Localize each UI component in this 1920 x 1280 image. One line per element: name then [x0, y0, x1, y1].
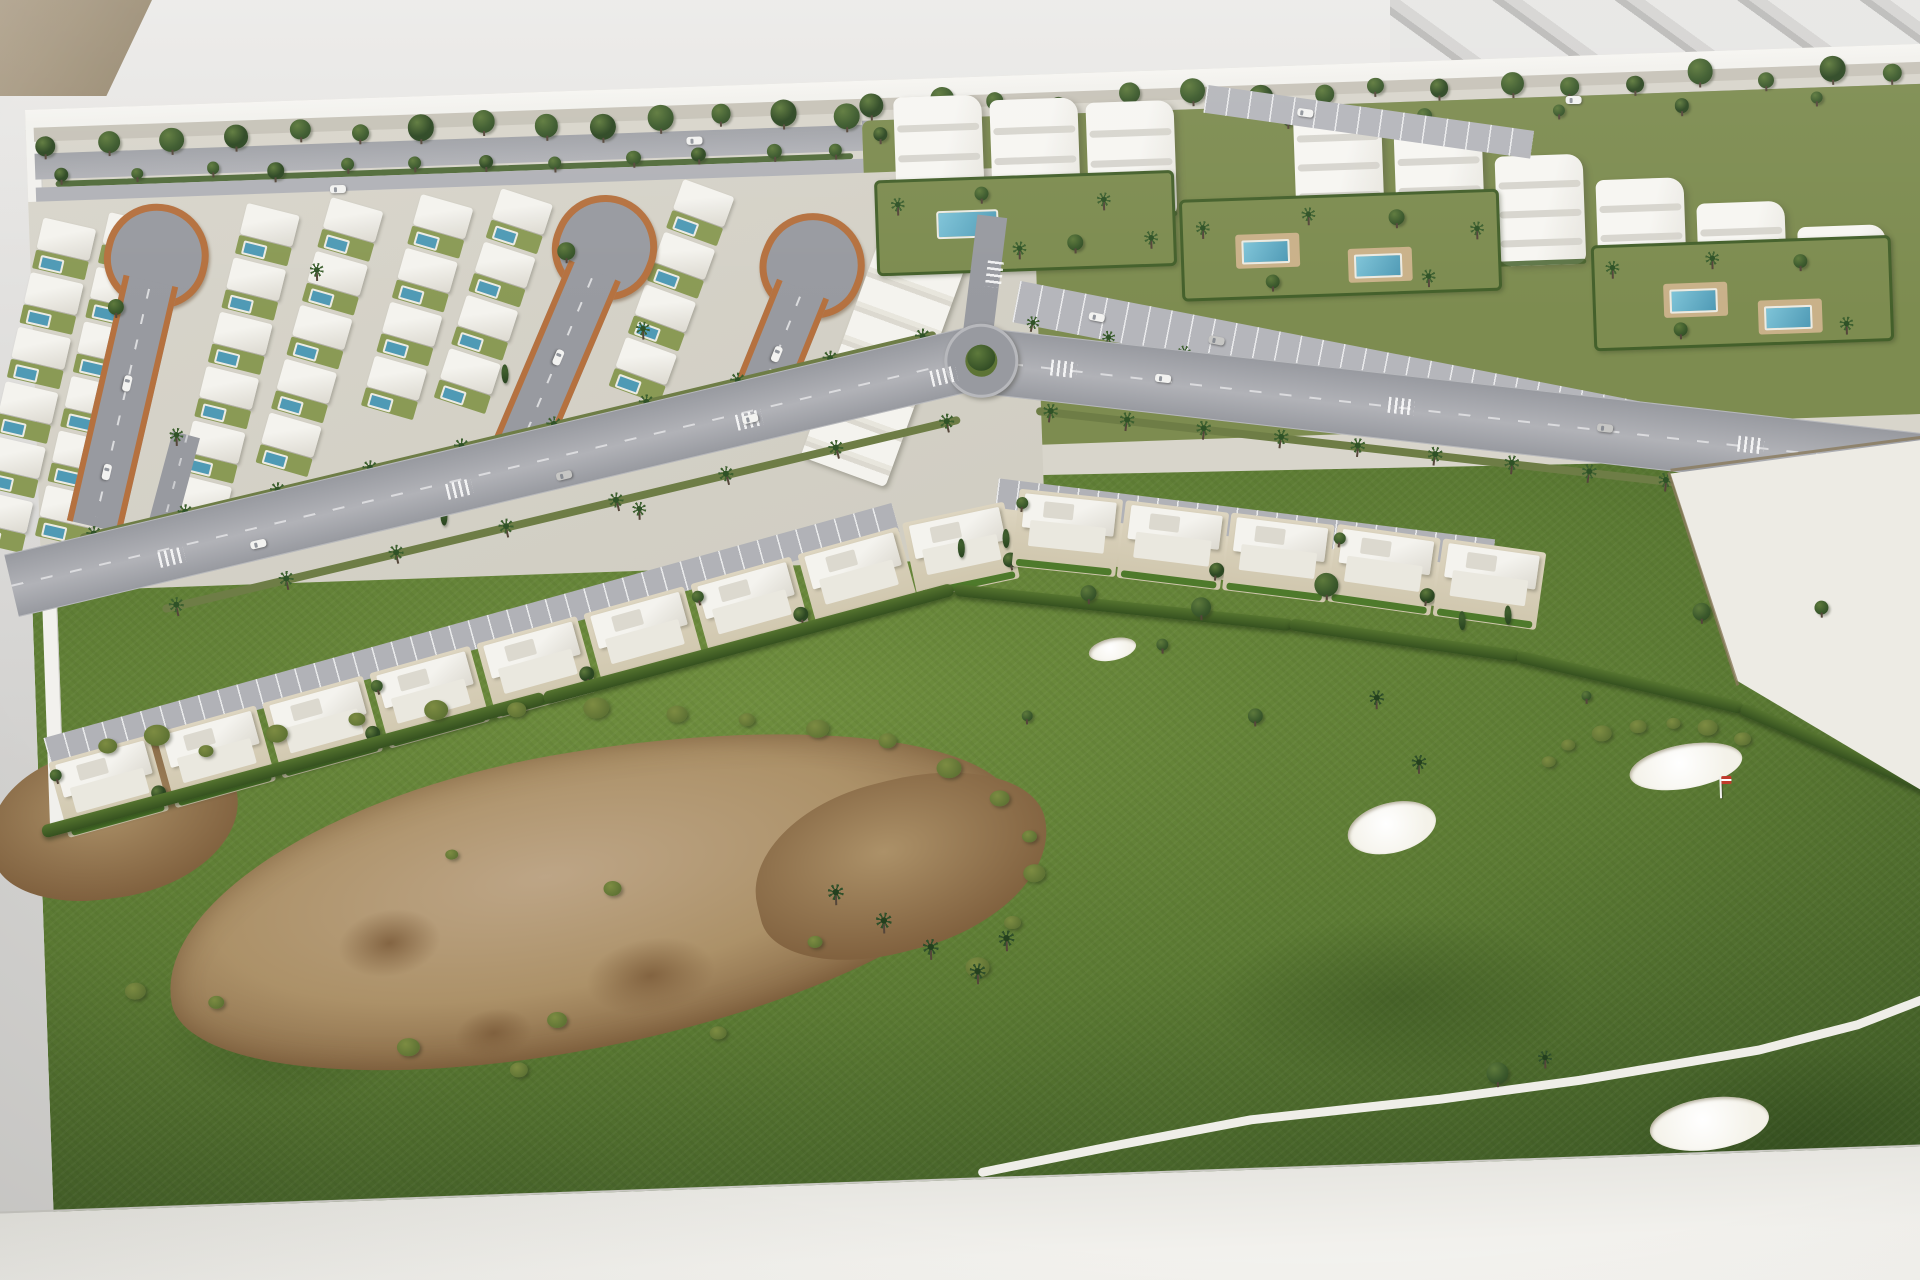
crosswalk [1387, 397, 1415, 416]
tree-trunk [1816, 101, 1818, 106]
tree-trunk [1634, 91, 1636, 96]
tree-trunk [546, 136, 548, 141]
townhouse-block [1117, 500, 1230, 590]
balcony-band [1599, 204, 1681, 214]
tree-trunk [1891, 80, 1893, 85]
street-tree [974, 186, 989, 201]
bush [198, 744, 213, 757]
tree-trunk [1512, 93, 1514, 98]
car-windshield [253, 542, 257, 548]
palm-crown [1411, 754, 1427, 770]
palm-tree [169, 428, 183, 442]
balcony-band [1298, 162, 1380, 172]
palm-tree [891, 197, 905, 211]
golf-flag [1721, 776, 1731, 784]
tree-trunk [1396, 223, 1398, 228]
balcony-band [1700, 227, 1782, 237]
street-tree [1265, 274, 1279, 288]
tree-trunk [108, 151, 110, 156]
palm-crown [1421, 269, 1435, 283]
tree-trunk [56, 779, 59, 784]
pool-deck [1235, 233, 1300, 269]
car-windshield [745, 417, 749, 423]
palm-tree [1427, 445, 1444, 462]
tree-trunk [414, 168, 416, 173]
car-windshield [1092, 314, 1096, 319]
palm-tree [1581, 463, 1598, 480]
tree-trunk [1438, 95, 1440, 100]
car-windshield [1569, 97, 1572, 102]
villa-pool [13, 364, 40, 383]
palm-crown [1350, 437, 1367, 454]
communal-pool [1669, 288, 1718, 314]
palm-crown [876, 912, 893, 929]
tree-trunk [565, 258, 567, 263]
tree-trunk [774, 156, 776, 161]
palm-tree [310, 263, 324, 277]
bush [97, 738, 117, 754]
palm-tree [632, 502, 646, 516]
pool-deck [1348, 247, 1413, 283]
villa-pool [25, 309, 52, 328]
palm-crown [1097, 192, 1111, 206]
villa-pool [277, 396, 304, 416]
balcony-band [1089, 128, 1171, 138]
tree-trunk [633, 163, 635, 168]
street-tree [873, 127, 887, 141]
tree-trunk [879, 139, 881, 144]
palm-tree [1605, 260, 1619, 274]
street-tree [1687, 59, 1713, 85]
photo-of-scale-model [0, 0, 1920, 1280]
tree-trunk [1161, 649, 1163, 654]
palm-tree [969, 963, 986, 980]
palm-crown [169, 428, 183, 442]
balcony-band [1090, 158, 1172, 168]
tree-trunk [115, 313, 117, 318]
street-tree [1067, 234, 1083, 250]
crosswalk [985, 260, 1004, 288]
tree-trunk [1200, 615, 1202, 620]
tree-trunk [1701, 619, 1703, 624]
car-windshield [125, 378, 131, 382]
tree-trunk [485, 167, 487, 172]
balcony-band [1499, 209, 1581, 219]
car-windshield [557, 352, 563, 357]
apartment-block [1495, 154, 1587, 267]
palm-tree [1012, 241, 1026, 255]
palm-tree [828, 884, 845, 901]
palm-tree [922, 939, 939, 956]
tree-trunk [1765, 86, 1767, 91]
palm-crown [1470, 221, 1484, 235]
villa-pool [38, 255, 65, 274]
tree-trunk [1026, 719, 1028, 724]
street-tree [267, 162, 284, 179]
palm-tree [1421, 269, 1435, 283]
street-tree [1552, 104, 1565, 117]
palm-tree [1369, 689, 1385, 705]
palm-crown [1273, 428, 1290, 445]
tree-trunk [660, 129, 662, 134]
palm-tree [1411, 754, 1427, 770]
villa-pool [323, 234, 350, 254]
car-windshield [1300, 110, 1304, 115]
villa-pool [200, 403, 227, 422]
car-windshield [1212, 337, 1216, 342]
bush [1021, 830, 1036, 843]
tree-trunk [377, 690, 380, 695]
villa-pool [0, 473, 14, 492]
tree-trunk [1821, 613, 1823, 618]
palm-tree [1301, 207, 1315, 221]
palm-tree [1097, 192, 1111, 206]
tree-trunk [1681, 111, 1683, 116]
communal-pool [1764, 305, 1813, 331]
car [770, 345, 783, 363]
tree-trunk [1326, 595, 1328, 600]
communal-pool [1241, 239, 1290, 265]
tree-trunk [1254, 721, 1256, 726]
balcony-band [1500, 237, 1582, 247]
street-tree [859, 93, 884, 118]
palm-crown [1839, 316, 1853, 330]
street-tree [1247, 708, 1263, 724]
tree-trunk [212, 172, 214, 177]
palm-crown [1025, 314, 1040, 329]
palm-tree [876, 912, 893, 929]
car-windshield [559, 473, 563, 479]
street-tree [833, 103, 860, 130]
villa-pool [413, 231, 440, 251]
tree-trunk [1192, 101, 1194, 106]
tree-trunk [1074, 248, 1076, 253]
palm-tree [1144, 231, 1158, 245]
car-windshield [333, 187, 336, 192]
tree-trunk [720, 121, 722, 126]
palm-crown [1369, 689, 1385, 705]
tree-trunk [698, 160, 700, 165]
tree-trunk [1375, 92, 1377, 97]
car-windshield [690, 138, 693, 143]
palm-crown [310, 263, 324, 277]
tree-trunk [60, 180, 62, 185]
villa-pool [292, 342, 319, 362]
tree-trunk [1832, 80, 1834, 85]
palm-tree [636, 321, 650, 335]
car-windshield [105, 467, 111, 471]
balcony-band [994, 155, 1076, 165]
street-tree [1021, 710, 1032, 721]
car [122, 374, 133, 391]
palm-tree [1538, 1050, 1552, 1064]
balcony-band [1600, 232, 1682, 242]
tree-trunk [835, 155, 837, 160]
communal-garden [1179, 189, 1502, 302]
car [1597, 423, 1614, 433]
street-tree [1429, 79, 1448, 98]
tree-trunk [1558, 115, 1560, 120]
palm-crown [1605, 260, 1619, 274]
tree-trunk [300, 138, 302, 143]
palm-crown [1119, 411, 1136, 428]
tree-trunk [698, 600, 701, 605]
palm-tree [1839, 316, 1853, 330]
tree-trunk [275, 177, 277, 182]
palm-tree [1273, 428, 1290, 445]
palm-crown [969, 963, 986, 980]
balcony-band [993, 125, 1075, 135]
tree-trunk [981, 199, 983, 204]
tree-trunk [783, 124, 785, 129]
tree-trunk [1800, 266, 1802, 271]
tree-trunk [1699, 82, 1701, 87]
street-tree [224, 125, 248, 149]
palm-tree [1196, 221, 1210, 235]
townhouse-block [1012, 489, 1124, 577]
balcony-band [897, 123, 979, 133]
bush [936, 757, 962, 778]
tree-trunk [420, 139, 422, 144]
palm-crown [1504, 454, 1521, 471]
tree-trunk [846, 127, 848, 132]
villa-pool [398, 285, 425, 305]
villa-pool [241, 240, 268, 259]
palm-tree [1705, 251, 1719, 265]
tree-trunk [235, 147, 237, 152]
car [1297, 108, 1314, 118]
villa-pool [262, 450, 289, 470]
car-windshield [775, 349, 781, 354]
street-tree [1388, 209, 1405, 226]
tree-trunk [1497, 1082, 1499, 1087]
villa-pool [227, 295, 254, 314]
car [551, 348, 565, 366]
villa-pool [382, 339, 409, 359]
villa-pool [474, 278, 501, 299]
crosswalk [1737, 436, 1765, 455]
palm-crown [1196, 419, 1213, 436]
palm-tree [1042, 402, 1059, 419]
car [1566, 96, 1582, 104]
communal-garden [874, 170, 1177, 276]
street-tree [1560, 77, 1579, 96]
street-tree [647, 105, 673, 131]
palm-crown [998, 930, 1015, 947]
car [1208, 335, 1225, 346]
villa-pool [0, 528, 2, 547]
bush [807, 935, 822, 948]
tree-trunk [137, 177, 139, 182]
tree-trunk [1088, 599, 1090, 604]
bush [445, 849, 458, 860]
tree-trunk [45, 154, 47, 159]
villa-pool [367, 393, 394, 413]
car [101, 463, 112, 480]
tree-trunk [1272, 287, 1274, 292]
car [1088, 312, 1105, 323]
tree-trunk [1586, 699, 1588, 704]
villa-pool [0, 419, 27, 438]
palm-crown [1012, 241, 1026, 255]
palm-crown [1196, 221, 1210, 235]
palm-tree [1119, 411, 1136, 428]
car-windshield [1600, 425, 1604, 430]
villa-pool [41, 522, 68, 541]
palm-crown [1538, 1050, 1552, 1064]
balcony-band [898, 153, 980, 163]
tree-trunk [870, 115, 872, 120]
villa-pool [214, 349, 241, 368]
car [1155, 374, 1172, 384]
car [330, 185, 346, 194]
palm-crown [1301, 207, 1315, 221]
palm-crown [891, 197, 905, 211]
townhouse-roof-box [1043, 501, 1075, 520]
pool-deck [1758, 298, 1823, 334]
tree-trunk [347, 169, 349, 174]
communal-garden [1591, 235, 1895, 351]
tree-trunk [602, 138, 604, 143]
model-board [25, 42, 1920, 1280]
bush [506, 701, 526, 717]
street-tree [1793, 254, 1808, 269]
palm-crown [636, 321, 650, 335]
palm-crown [828, 884, 845, 901]
palm-crown [1427, 445, 1444, 462]
bush [666, 705, 688, 723]
palm-tree [1470, 221, 1484, 235]
palm-tree [998, 930, 1015, 947]
pool-deck [1663, 282, 1728, 318]
crosswalk [1050, 360, 1078, 379]
palm-tree [1504, 454, 1521, 471]
tree-trunk [483, 131, 485, 136]
palm-crown [1581, 463, 1598, 480]
palm-tree [1350, 437, 1367, 454]
car-windshield [1158, 375, 1162, 380]
palm-crown [1705, 251, 1719, 265]
street-tree [557, 242, 575, 260]
tree-trunk [171, 150, 173, 155]
palm-crown [1144, 231, 1158, 245]
bush [124, 982, 146, 1000]
palm-crown [632, 502, 646, 516]
villa-pool [492, 225, 519, 246]
car [686, 136, 702, 145]
road-centerline [95, 289, 150, 517]
cart-path [977, 981, 1920, 1173]
townhouse-block [1433, 538, 1547, 630]
balcony-band [1398, 157, 1480, 167]
tree-trunk [360, 139, 362, 144]
balcony-band [1498, 180, 1580, 190]
palm-tree [1025, 314, 1040, 329]
palm-tree [1196, 419, 1213, 436]
street-tree [472, 110, 495, 133]
street-tree [1673, 322, 1688, 337]
tree-trunk [1680, 334, 1682, 339]
villa-pool [308, 288, 335, 308]
palm-crown [1042, 402, 1059, 419]
palm-crown [922, 939, 939, 956]
roundabout-tree [967, 344, 996, 371]
townhouse-block [1327, 524, 1441, 616]
communal-pool [1354, 253, 1403, 279]
